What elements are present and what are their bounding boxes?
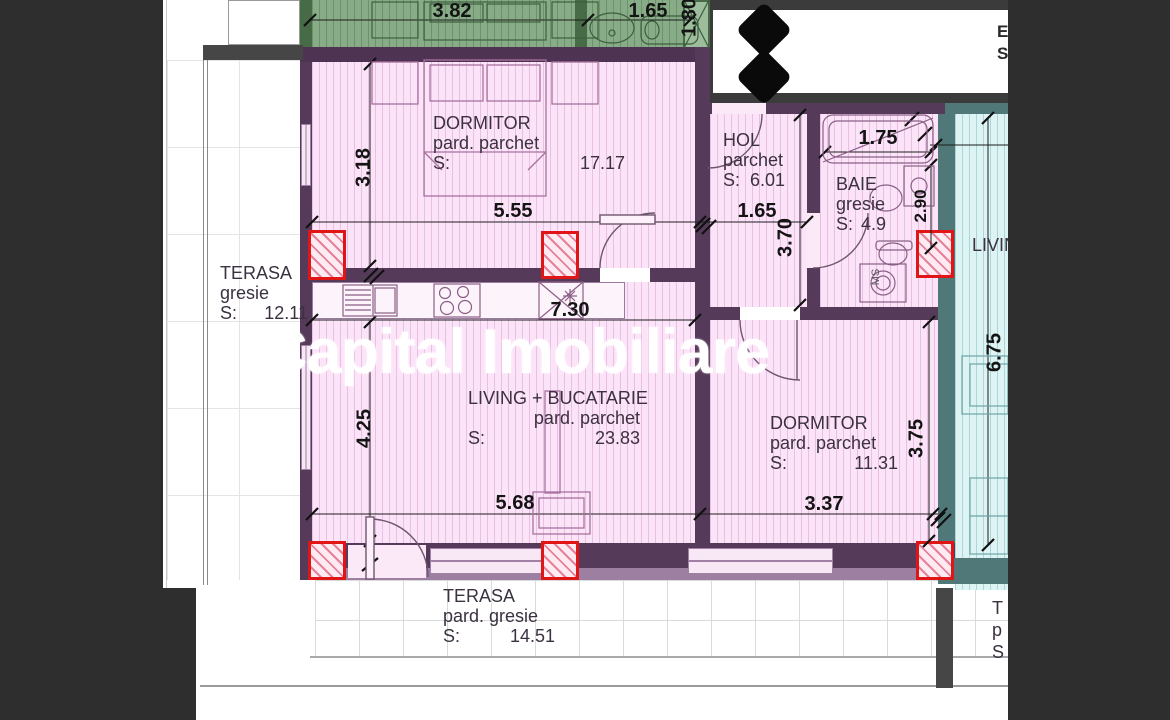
room-name: HOL — [723, 130, 803, 150]
room-finish: pard. parchet — [770, 433, 898, 453]
room-name: TERASA — [220, 263, 308, 283]
area-label: S: — [443, 626, 460, 646]
area-label: S: — [723, 170, 740, 190]
dim-living-width: 5.68 — [485, 492, 545, 515]
dim-dormitor2-width: 3.37 — [794, 493, 854, 516]
room-name: DORMITOR — [770, 413, 898, 433]
room-finish: parchet — [723, 150, 803, 170]
area-value: 4.9 — [861, 214, 886, 234]
room-finish: gresie — [220, 283, 308, 303]
room-finish: gresie — [836, 194, 911, 214]
room-name: BAIE — [836, 174, 911, 194]
floor-plan-canvas: E S — [0, 0, 1170, 720]
dim-green-bath-width: 1.65 — [618, 0, 678, 23]
frame-left-bottom-notch — [163, 588, 196, 720]
label-baie: BAIE gresie S:4.9 — [836, 174, 911, 234]
label-terasa-bottom: TERASA pard. gresie S:14.51 — [443, 586, 555, 646]
frame-right — [1008, 0, 1170, 720]
area-value: 17.17 — [580, 153, 625, 173]
label-neighbor-partial: T p S — [992, 598, 1004, 662]
area-value: 6.01 — [750, 170, 785, 190]
cyan-furniture — [962, 356, 1008, 554]
frame-left — [0, 0, 163, 720]
area-value: 11.31 — [854, 453, 898, 473]
dim-hol-height: 3.70 — [775, 208, 798, 268]
room-name: TERASA — [443, 586, 555, 606]
dim-dormitor1-width: 5.55 — [483, 200, 543, 223]
label-terasa-left: TERASA gresie S:12.11 — [220, 263, 308, 323]
room-name: DORMITOR — [433, 113, 625, 133]
label-washing-machine: MS — [870, 262, 884, 292]
dim-dormitor1-height: 3.18 — [353, 138, 376, 198]
partial-line: T — [992, 598, 1004, 618]
label-dormitor2: DORMITOR pard. parchet S:11.31 — [770, 413, 898, 473]
partial-line: S — [992, 642, 1004, 662]
room-finish: pard. parchet — [433, 133, 625, 153]
area-label: S: — [220, 303, 237, 323]
label-hol: HOL parchet S:6.01 — [723, 130, 803, 190]
area-value: 14.51 — [510, 626, 555, 646]
room-finish: pard. gresie — [443, 606, 555, 626]
room-finish: pard. parchet — [468, 408, 640, 428]
label-living-bucatarie: LIVING + BUCATARIE pard. parchet S:23.83 — [468, 388, 640, 448]
watermark-text: Capital Imobiliare — [262, 316, 769, 388]
dim-living-height: 4.25 — [354, 399, 377, 459]
dimension-lines — [310, 20, 1008, 545]
area-label: S: — [468, 428, 485, 448]
dim-bath-tub-width: 1.75 — [848, 127, 908, 150]
dim-bath-height: 2.90 — [911, 176, 931, 236]
area-label: S: — [836, 214, 853, 234]
partial-line: p — [992, 620, 1004, 640]
dim-dormitor2-height: 3.75 — [906, 409, 929, 469]
dim-green-window: 1.80 — [679, 0, 702, 41]
label-dormitor1: DORMITOR pard. parchet S:17.17 — [433, 113, 625, 173]
area-label: S: — [770, 453, 787, 473]
dim-neighbor-living-height: 6.75 — [984, 323, 1007, 383]
room-name: LIVING + BUCATARIE — [468, 388, 640, 408]
area-value: 23.83 — [595, 428, 640, 448]
area-label: S: — [433, 153, 450, 173]
dim-green-width: 3.82 — [420, 0, 484, 23]
